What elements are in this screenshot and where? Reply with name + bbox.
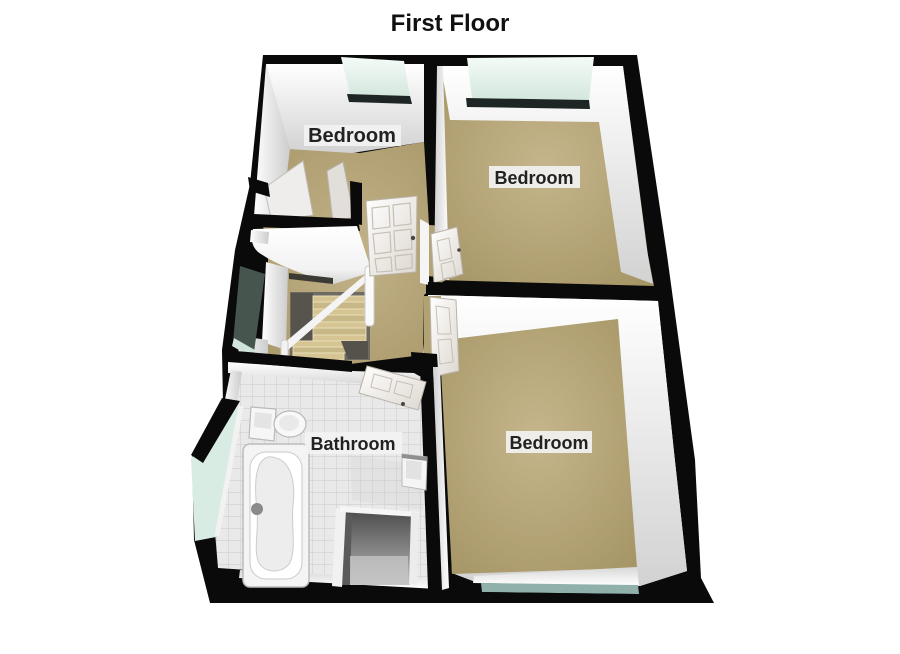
svg-text:Bedroom: Bedroom: [509, 433, 588, 453]
svg-text:Bedroom: Bedroom: [494, 168, 573, 188]
svg-text:Bathroom: Bathroom: [311, 434, 396, 454]
svg-text:Bedroom: Bedroom: [308, 125, 396, 147]
svg-text:First Floor: First Floor: [391, 10, 510, 37]
